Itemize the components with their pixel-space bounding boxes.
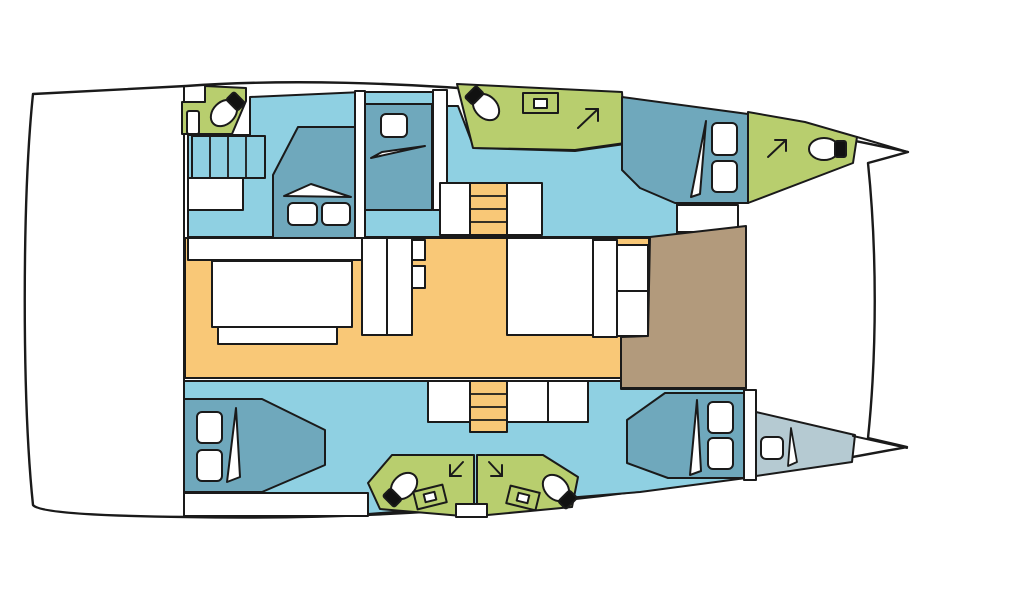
catamaran-floor-plan [0,0,1024,600]
stair-landing [548,381,588,422]
port-aft-landing [188,178,243,210]
starboard-aft-strip [184,493,368,516]
galley-counter-return [362,238,387,335]
pillow [712,161,737,192]
stair-landing [428,381,470,422]
nav-seat [617,245,648,291]
nav-bench [593,240,617,337]
bulkhead-strip [744,390,756,480]
pillow [197,450,222,481]
sink-icon [187,111,199,134]
pillow [288,203,317,225]
stair-landing [440,183,470,235]
galley-unit [387,238,412,335]
saloon-bench [218,327,337,344]
pillow [322,203,350,225]
boarding-step [456,504,487,517]
stair-landing [507,381,548,422]
pillow [708,438,733,469]
stair-landing [507,183,542,235]
saloon-table [212,261,352,327]
nav-seat [617,291,648,336]
galley-appliance [412,266,425,288]
galley-appliance [412,240,425,260]
toilet-icon [809,138,846,160]
sink-basin [534,99,547,108]
pillow [761,437,783,459]
pillow [381,114,407,137]
nav-table [507,238,593,335]
floor-plan-canvas [0,0,1024,600]
galley-counter [188,238,362,260]
pillow [708,402,733,433]
pillow [197,412,222,443]
bulkhead-strip [355,91,365,238]
pillow [712,123,737,155]
